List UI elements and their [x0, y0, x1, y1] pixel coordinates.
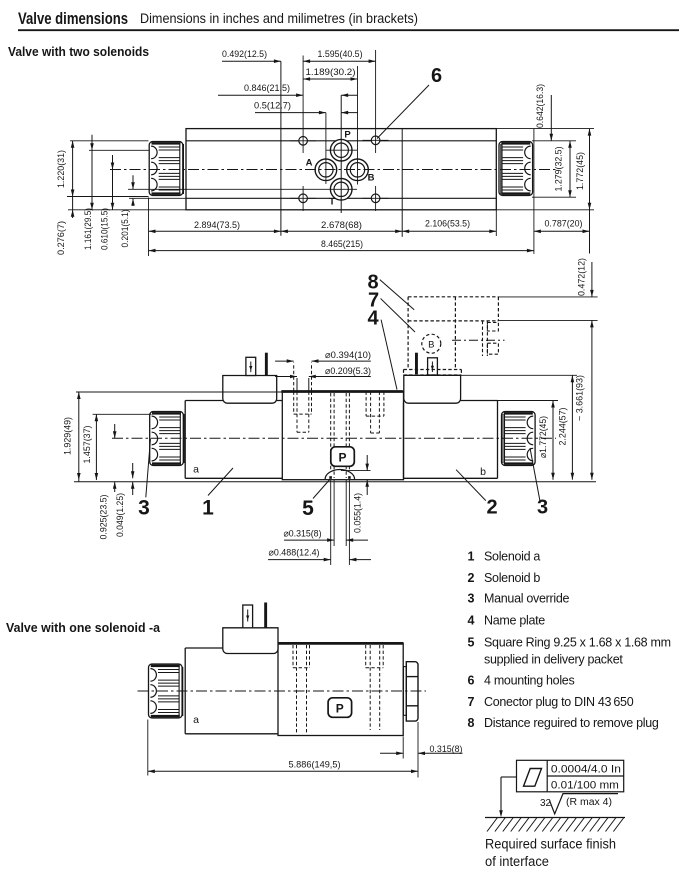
svg-text:Name plate: Name plate — [484, 614, 545, 628]
svg-text:Valve dimensions: Valve dimensions — [18, 9, 128, 28]
svg-text:A: A — [306, 158, 313, 169]
svg-text:0.610(15.5): 0.610(15.5) — [100, 208, 111, 250]
svg-text:Solenoid a: Solenoid a — [484, 550, 540, 564]
svg-text:⌀1.772(45): ⌀1.772(45) — [538, 416, 549, 458]
svg-text:0.055(1.4): 0.055(1.4) — [353, 493, 364, 533]
svg-text:7: 7 — [468, 695, 475, 709]
svg-text:1.772(45): 1.772(45) — [575, 152, 586, 190]
svg-text:Valve with one solenoid -a: Valve with one solenoid -a — [6, 620, 161, 635]
svg-text:2.894(73.5): 2.894(73.5) — [194, 220, 240, 231]
svg-text:0.315(8): 0.315(8) — [430, 744, 463, 755]
svg-text:1.189(30.2): 1.189(30.2) — [306, 67, 356, 78]
svg-text:4 mounting holes: 4 mounting holes — [484, 674, 574, 688]
svg-text:Valve with two solenoids: Valve with two solenoids — [8, 44, 149, 59]
svg-text:3: 3 — [537, 497, 548, 519]
svg-text:0.492(12.5): 0.492(12.5) — [222, 49, 267, 60]
svg-text:1: 1 — [202, 497, 214, 520]
svg-text:(R max 4): (R max 4) — [566, 797, 612, 808]
svg-text:0.5(12.7): 0.5(12.7) — [254, 101, 291, 112]
svg-text:0.642(16.3): 0.642(16.3) — [535, 84, 546, 128]
svg-text:1.220(31): 1.220(31) — [56, 150, 67, 188]
svg-text:0.925(23.5): 0.925(23.5) — [98, 495, 109, 540]
svg-text:0.276(7): 0.276(7) — [56, 221, 67, 255]
svg-text:6: 6 — [431, 65, 442, 87]
svg-text:8: 8 — [468, 716, 475, 730]
svg-text:0.846(21.5): 0.846(21.5) — [244, 83, 290, 94]
svg-text:0.472(12): 0.472(12) — [577, 258, 588, 296]
svg-text:⌀0.315(8): ⌀0.315(8) — [284, 529, 322, 540]
svg-text:2.106(53.5): 2.106(53.5) — [425, 219, 470, 230]
svg-text:3: 3 — [138, 497, 150, 520]
svg-text:P: P — [336, 702, 344, 716]
svg-text:B: B — [368, 173, 375, 184]
svg-text:3: 3 — [468, 592, 475, 606]
svg-text:0.01/100 mm: 0.01/100 mm — [551, 780, 619, 792]
svg-text:8.465(215): 8.465(215) — [321, 239, 363, 250]
svg-text:0.787(20): 0.787(20) — [545, 219, 583, 230]
svg-text:Dimensions in inches and milim: Dimensions in inches and milimetres (in … — [140, 10, 418, 26]
svg-text:0.0004/4.0 In: 0.0004/4.0 In — [551, 764, 621, 776]
svg-text:P: P — [344, 130, 351, 141]
svg-text:Square Ring 9.25 x 1.68 x 1.68: Square Ring 9.25 x 1.68 x 1.68 mm — [484, 636, 671, 650]
svg-text:2.244(57): 2.244(57) — [558, 408, 569, 446]
svg-text:a: a — [193, 464, 199, 476]
svg-text:Solenoid b: Solenoid b — [484, 571, 540, 585]
svg-text:⌀0.394(10): ⌀0.394(10) — [325, 350, 371, 361]
svg-text:⌀0.488(12.4): ⌀0.488(12.4) — [269, 548, 320, 559]
svg-text:Manual override: Manual override — [484, 592, 569, 606]
svg-text:32: 32 — [540, 798, 552, 809]
svg-text:⌀0.209(5.3): ⌀0.209(5.3) — [325, 366, 371, 377]
svg-text:4: 4 — [367, 308, 379, 330]
svg-text:Required surface finish: Required surface finish — [485, 837, 616, 852]
svg-text:2.678(68): 2.678(68) — [321, 220, 362, 231]
svg-text:0.049(1.25): 0.049(1.25) — [115, 493, 126, 537]
svg-text:2: 2 — [468, 571, 475, 585]
svg-text:Distance reguired to remove pl: Distance reguired to remove plug — [484, 716, 659, 730]
svg-text:1.279(32.5): 1.279(32.5) — [554, 147, 565, 192]
svg-text:~ 3.661(93): ~ 3.661(93) — [575, 375, 586, 421]
svg-text:5.886(149,5): 5.886(149,5) — [289, 760, 341, 771]
svg-text:2: 2 — [486, 497, 497, 519]
svg-text:supplied in delivery packet: supplied in delivery packet — [484, 653, 623, 667]
svg-text:1.595(40.5): 1.595(40.5) — [318, 49, 363, 60]
svg-text:1.929(49): 1.929(49) — [63, 417, 74, 455]
svg-text:Conector plug to DIN 43 650: Conector plug to DIN 43 650 — [484, 695, 634, 709]
svg-text:a: a — [193, 714, 199, 726]
svg-text:0.201(5.1): 0.201(5.1) — [120, 210, 131, 248]
svg-text:of interface: of interface — [485, 854, 549, 869]
svg-text:5: 5 — [302, 497, 314, 520]
svg-text:P: P — [338, 451, 346, 465]
svg-text:4: 4 — [468, 614, 475, 628]
svg-text:6: 6 — [468, 674, 475, 688]
svg-text:b: b — [480, 466, 486, 478]
svg-text:1.161(29.5): 1.161(29.5) — [83, 208, 94, 250]
svg-text:B: B — [428, 340, 434, 351]
svg-text:1.457(37): 1.457(37) — [82, 426, 93, 464]
svg-text:1: 1 — [468, 550, 475, 564]
svg-text:T: T — [329, 197, 335, 208]
svg-text:5: 5 — [468, 636, 475, 650]
